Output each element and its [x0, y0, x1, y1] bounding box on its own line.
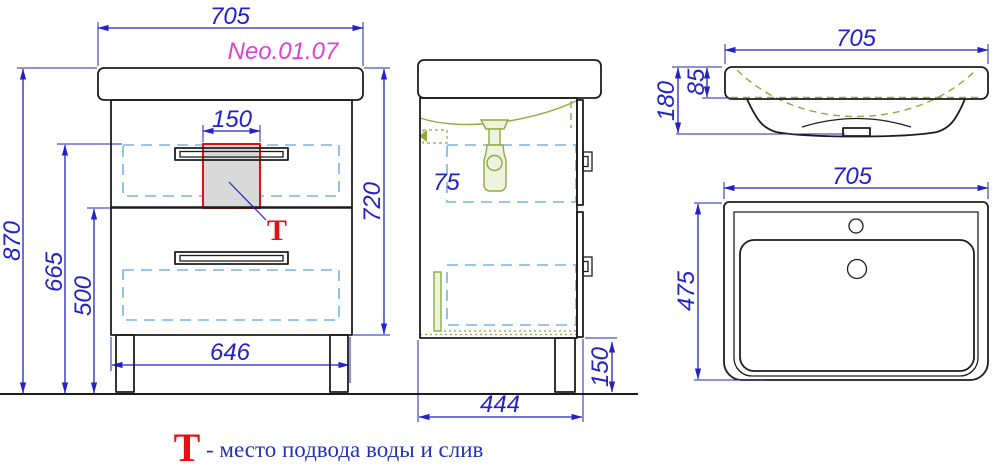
dim-height-500: 500 [70, 275, 97, 316]
sink-top-view: 705 475 [673, 163, 988, 380]
sink-front-view: 705 180 85 [653, 25, 988, 137]
countertop-front [98, 68, 363, 100]
handle-profile-upper [583, 152, 592, 171]
sink-bowl-hump [802, 119, 911, 128]
lower-drawer-handle [175, 252, 288, 264]
drain-pipe [434, 272, 441, 331]
wall-bracket [419, 130, 447, 143]
dim-height-665: 665 [41, 251, 68, 292]
drawer-box-lower-outline [447, 265, 576, 325]
dim-bottom-width: 646 [210, 339, 251, 366]
legend-text: - место подвода воды и слив [206, 437, 483, 462]
dim-sink-top-depth: 475 [673, 270, 700, 311]
drawer-front-upper [577, 100, 583, 205]
drain-tailpipe [489, 129, 500, 145]
countertop-side [418, 60, 601, 98]
dim-sink-height: 180 [653, 80, 680, 121]
side-view: 75 444 150 [418, 60, 617, 422]
right-leg [330, 335, 348, 392]
sink-inner-edge [734, 212, 978, 376]
vanity-technical-drawing: Т 705 Neo.01.07 150 870 665 500 720 646 [0, 0, 1000, 467]
drain-fitting [481, 120, 508, 129]
cabinet-body [111, 100, 352, 335]
dim-sink-top-width: 705 [832, 163, 873, 190]
siphon-bottle [484, 145, 506, 191]
sink-outer-edge [724, 202, 988, 380]
side-leg [555, 338, 575, 392]
dim-leg-height: 150 [587, 346, 614, 387]
dim-body-height: 720 [359, 181, 386, 222]
handle-profile-lower [583, 257, 592, 276]
tech-marker-front: Т [267, 214, 287, 247]
dim-back-clearance: 75 [433, 169, 460, 196]
dim-top-width: 705 [210, 3, 251, 30]
tech-zone-highlight [203, 144, 260, 208]
cabinet-floor-pipe-line [420, 331, 576, 335]
dim-total-height: 870 [0, 220, 26, 261]
legend-symbol: Т [174, 425, 201, 467]
dim-sink-rim-height: 85 [683, 68, 710, 95]
sink-drain-outlet [843, 128, 870, 136]
sink-bowl-dashed [737, 70, 976, 117]
drawer-front-lower [577, 212, 583, 337]
legend: Т - место подвода воды и слив [174, 425, 484, 467]
dim-sink-width: 705 [836, 25, 877, 52]
sink-rim [725, 67, 988, 99]
overflow-hole [848, 260, 867, 279]
front-view: Т 705 Neo.01.07 150 870 665 500 720 646 [0, 3, 390, 393]
lower-drawer-outline [123, 270, 339, 320]
model-label: Neo.01.07 [228, 38, 340, 65]
dim-depth: 444 [480, 391, 520, 418]
sink-bowl-underside [747, 99, 965, 137]
drawing-canvas: Т 705 Neo.01.07 150 870 665 500 720 646 [0, 0, 1000, 467]
dim-tech-zone-width: 150 [212, 106, 253, 133]
drawer-box-upper-outline [447, 145, 576, 202]
left-leg [116, 335, 134, 392]
faucet-hole [849, 219, 863, 233]
